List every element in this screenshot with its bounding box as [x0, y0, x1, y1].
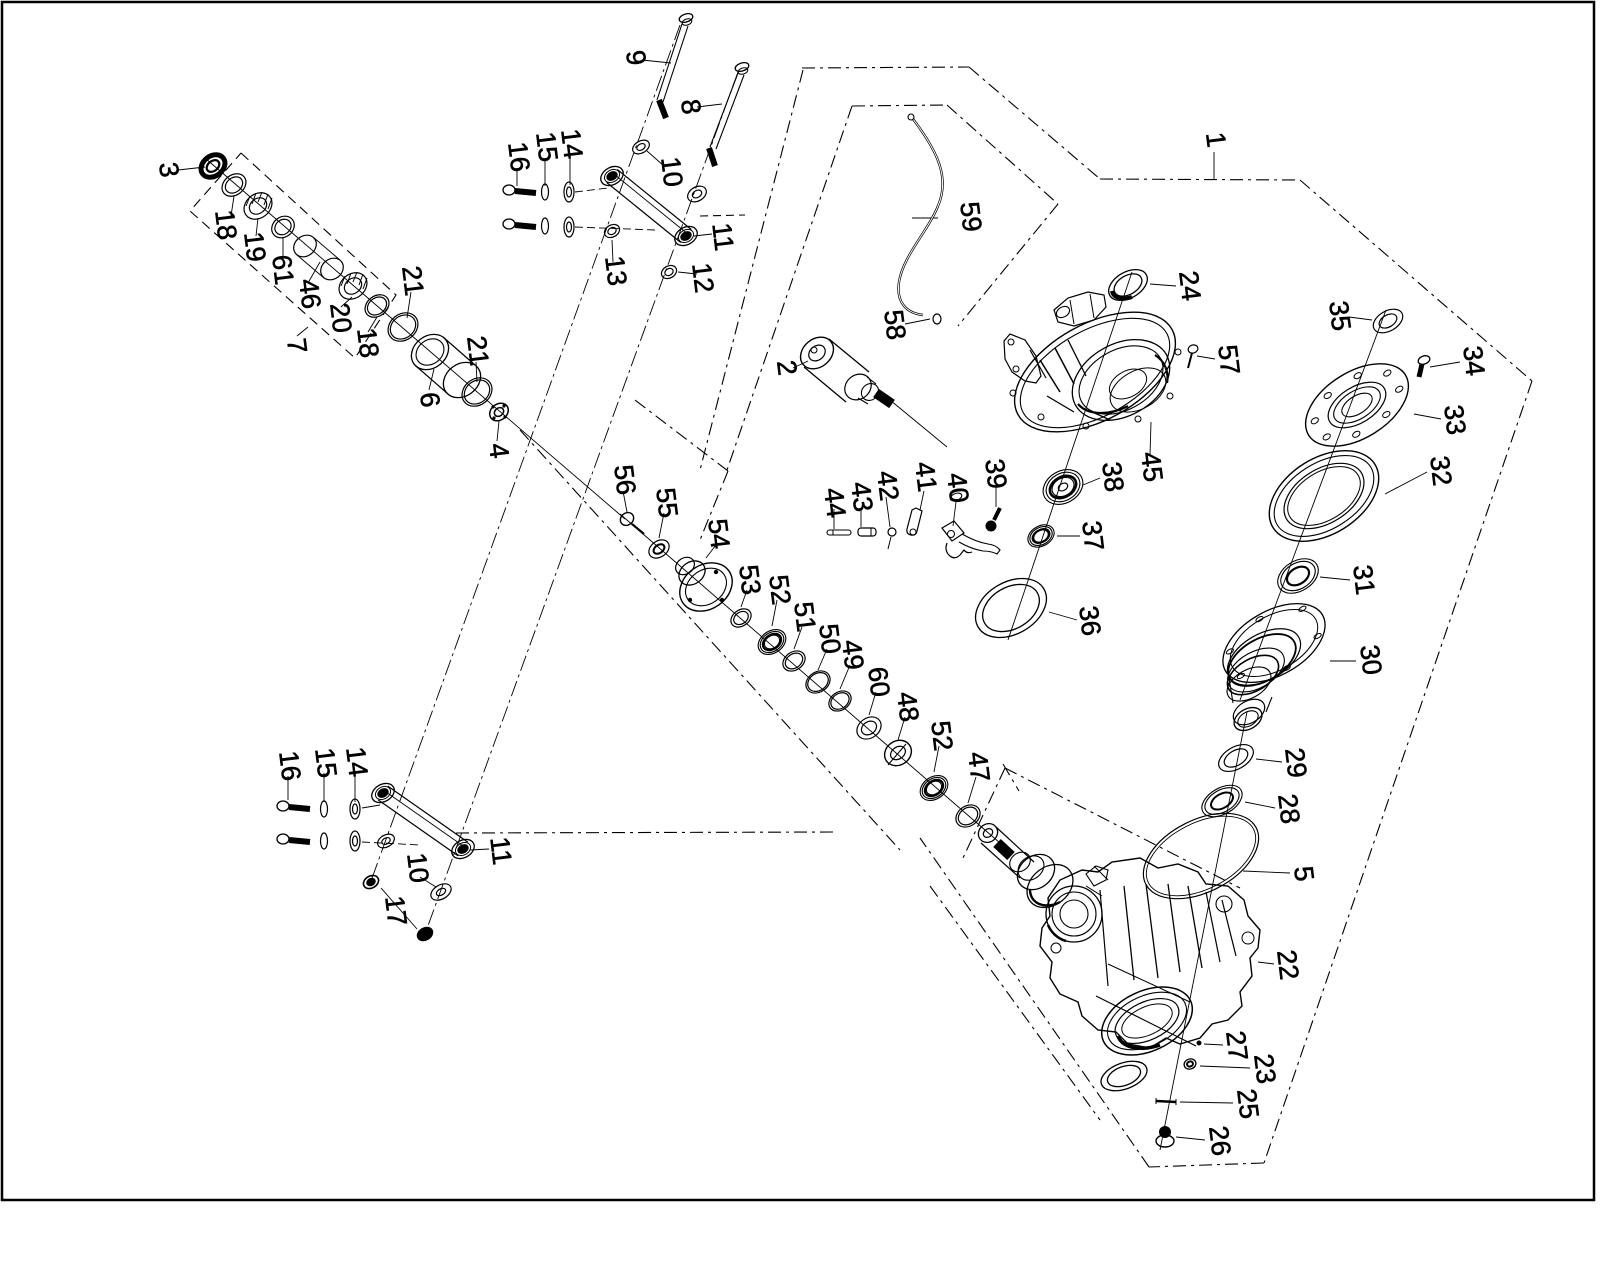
- svg-text:52: 52: [763, 573, 796, 606]
- svg-text:28: 28: [1272, 792, 1305, 825]
- svg-text:39: 39: [979, 457, 1012, 490]
- svg-text:18: 18: [209, 208, 242, 241]
- svg-text:56: 56: [608, 463, 641, 496]
- svg-text:17: 17: [379, 894, 412, 927]
- svg-text:54: 54: [702, 517, 735, 550]
- svg-text:26: 26: [1203, 1124, 1236, 1157]
- svg-text:57: 57: [1212, 343, 1245, 376]
- svg-text:24: 24: [1173, 269, 1206, 302]
- svg-text:21: 21: [461, 334, 494, 367]
- svg-text:59: 59: [954, 200, 987, 233]
- svg-text:49: 49: [836, 638, 869, 671]
- svg-text:38: 38: [1096, 460, 1129, 493]
- svg-text:14: 14: [340, 745, 373, 778]
- svg-text:47: 47: [962, 750, 995, 783]
- svg-text:29: 29: [1279, 746, 1312, 779]
- svg-text:21: 21: [396, 264, 429, 297]
- svg-text:10: 10: [401, 851, 434, 884]
- svg-text:18: 18: [351, 326, 384, 359]
- svg-text:16: 16: [502, 140, 535, 173]
- svg-text:58: 58: [878, 308, 911, 341]
- svg-text:25: 25: [1231, 1087, 1264, 1120]
- svg-text:36: 36: [1073, 604, 1106, 637]
- svg-text:41: 41: [909, 460, 942, 493]
- svg-text:52: 52: [925, 719, 958, 752]
- svg-text:35: 35: [1323, 299, 1356, 332]
- svg-text:37: 37: [1076, 519, 1109, 552]
- svg-text:12: 12: [686, 261, 719, 294]
- svg-text:13: 13: [599, 254, 632, 287]
- svg-text:14: 14: [555, 127, 588, 160]
- svg-text:10: 10: [655, 155, 688, 188]
- svg-text:30: 30: [1354, 643, 1387, 676]
- svg-text:55: 55: [650, 486, 683, 519]
- svg-text:46: 46: [293, 277, 326, 310]
- svg-text:15: 15: [309, 746, 342, 779]
- svg-text:32: 32: [1424, 454, 1457, 487]
- svg-text:42: 42: [871, 469, 904, 502]
- svg-text:11: 11: [484, 835, 517, 866]
- svg-text:40: 40: [941, 471, 974, 504]
- svg-text:33: 33: [1438, 403, 1471, 436]
- svg-text:22: 22: [1271, 948, 1304, 981]
- svg-text:45: 45: [1135, 450, 1168, 483]
- svg-text:48: 48: [891, 690, 924, 723]
- svg-text:11: 11: [706, 221, 739, 252]
- svg-text:60: 60: [862, 665, 895, 698]
- svg-text:53: 53: [733, 563, 766, 596]
- svg-text:16: 16: [273, 749, 306, 782]
- svg-text:34: 34: [1457, 344, 1490, 377]
- svg-text:23: 23: [1248, 1052, 1281, 1085]
- svg-text:31: 31: [1347, 563, 1380, 596]
